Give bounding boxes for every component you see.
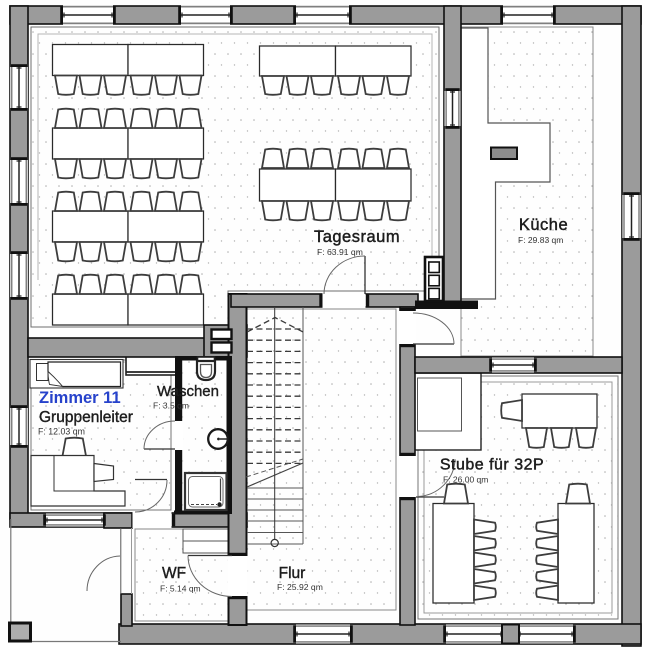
svg-text:F: 29.83 qm: F: 29.83 qm (518, 235, 563, 245)
svg-text:Zimmer 11: Zimmer 11 (39, 389, 121, 407)
svg-text:F: 3.5 qm: F: 3.5 qm (153, 401, 189, 411)
svg-text:Tagesraum: Tagesraum (314, 228, 400, 246)
svg-text:WF: WF (162, 565, 186, 582)
svg-text:Stube für 32P: Stube für 32P (440, 457, 544, 474)
svg-text:Küche: Küche (519, 216, 568, 234)
svg-text:Gruppenleiter: Gruppenleiter (39, 409, 133, 426)
svg-text:F: 63.91 qm: F: 63.91 qm (317, 247, 363, 257)
svg-text:F: 12.03 qm: F: 12.03 qm (38, 427, 85, 437)
svg-text:F: 5.14 qm: F: 5.14 qm (160, 584, 201, 594)
svg-text:Waschen: Waschen (157, 383, 219, 400)
svg-text:F: 25.92 qm: F: 25.92 qm (277, 582, 323, 592)
svg-text:F: 26.00 qm: F: 26.00 qm (443, 475, 488, 485)
svg-text:Flur: Flur (279, 565, 306, 582)
